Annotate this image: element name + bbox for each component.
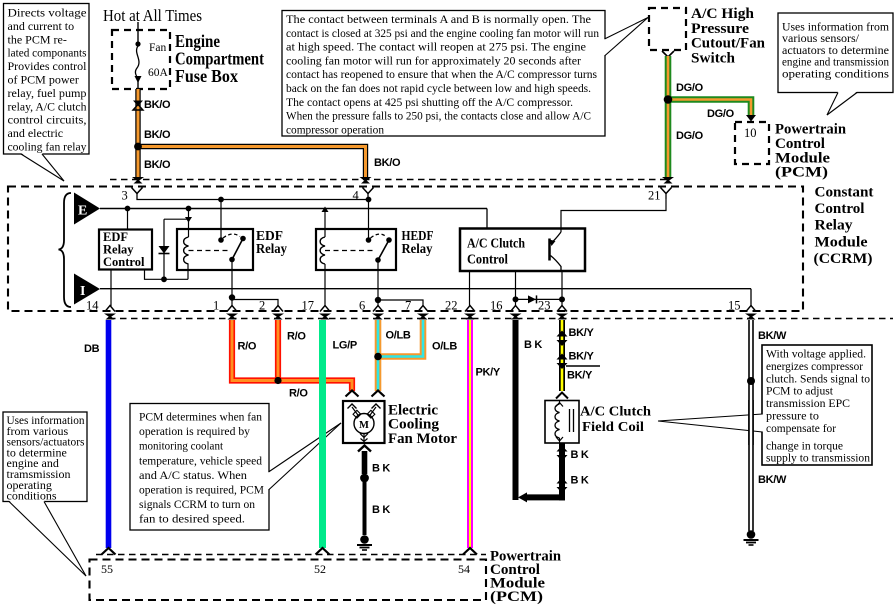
svg-text:R/O: R/O xyxy=(287,331,306,343)
svg-text:B K: B K xyxy=(372,463,390,475)
svg-text:52: 52 xyxy=(314,562,326,576)
svg-text:compressor operation: compressor operation xyxy=(286,122,384,136)
svg-text:Switch: Switch xyxy=(691,50,736,66)
svg-text:monitoring coolant: monitoring coolant xyxy=(139,439,224,453)
svg-text:control circuits,: control circuits, xyxy=(8,113,87,127)
svg-text:When the pressure falls to 250: When the pressure falls to 250 psi, the … xyxy=(286,109,591,123)
svg-text:2: 2 xyxy=(259,299,265,313)
svg-text:signals CCRM to turn on: signals CCRM to turn on xyxy=(139,497,255,511)
svg-text:10: 10 xyxy=(744,126,757,140)
svg-text:(PCM): (PCM) xyxy=(490,589,543,605)
svg-text:A/C Clutch: A/C Clutch xyxy=(580,405,651,420)
svg-text:DG/O: DG/O xyxy=(707,108,735,120)
svg-text:Relay: Relay xyxy=(815,218,854,234)
svg-text:Relay: Relay xyxy=(402,241,433,256)
svg-text:BK/O: BK/O xyxy=(144,129,171,141)
svg-text:Cutout/Fan: Cutout/Fan xyxy=(691,36,766,52)
svg-text:The contact opens at 425 psi s: The contact opens at 425 psi shutting of… xyxy=(286,95,573,109)
svg-text:17: 17 xyxy=(302,299,315,313)
svg-text:23: 23 xyxy=(538,299,551,313)
svg-text:R/O: R/O xyxy=(238,341,257,353)
svg-text:A/C High: A/C High xyxy=(691,6,755,22)
svg-text:The contact between terminals: The contact between terminals A and B is… xyxy=(286,12,591,26)
svg-text:the PCM re-: the PCM re- xyxy=(8,32,67,46)
svg-text:Fan: Fan xyxy=(149,42,167,54)
svg-text:conditions: conditions xyxy=(7,489,57,503)
svg-text:back on the fan does not rapid: back on the fan does not rapid cycle bet… xyxy=(286,81,591,95)
svg-text:E: E xyxy=(78,204,87,219)
svg-text:6: 6 xyxy=(359,299,365,313)
svg-text:O/LB: O/LB xyxy=(432,341,457,353)
svg-text:contact has reopened to ensure: contact has reopened to ensure that when… xyxy=(286,67,597,81)
svg-text:supply to transmission: supply to transmission xyxy=(766,451,870,465)
svg-text:B K: B K xyxy=(571,475,589,487)
svg-text:A/C Clutch: A/C Clutch xyxy=(467,236,525,251)
svg-text:DG/O: DG/O xyxy=(676,82,704,94)
svg-text:BK/O: BK/O xyxy=(144,99,171,111)
svg-text:(CCRM): (CCRM) xyxy=(814,251,873,267)
svg-text:Fan Motor: Fan Motor xyxy=(388,431,458,447)
svg-text:contact is closed at 325 psi a: contact is closed at 325 psi and the eng… xyxy=(286,26,599,40)
svg-text:and A/C status. When: and A/C status. When xyxy=(139,468,247,482)
svg-text:B K: B K xyxy=(372,504,390,516)
svg-text:BK/W: BK/W xyxy=(758,330,787,342)
svg-text:15: 15 xyxy=(728,299,741,313)
svg-text:at high speed. The contact wi: at high speed. The contact will reopen a… xyxy=(286,40,586,54)
svg-text:BK/Y: BK/Y xyxy=(569,327,595,339)
svg-text:fan to desired speed.: fan to desired speed. xyxy=(139,512,245,526)
svg-text:and current to: and current to xyxy=(8,19,75,33)
svg-text:relay, A/C clutch: relay, A/C clutch xyxy=(8,99,87,113)
svg-text:(PCM): (PCM) xyxy=(775,165,828,181)
svg-text:Field Coil: Field Coil xyxy=(582,420,644,435)
svg-text:4: 4 xyxy=(353,189,360,203)
svg-text:cooling fan motor will run for: cooling fan motor will run for approxima… xyxy=(286,53,581,67)
svg-text:relay, fuel pump: relay, fuel pump xyxy=(8,86,87,100)
svg-text:LG/P: LG/P xyxy=(333,340,357,352)
svg-text:DG/O: DG/O xyxy=(676,130,704,142)
svg-text:Constant: Constant xyxy=(815,184,874,200)
svg-text:BK/Y: BK/Y xyxy=(567,370,593,382)
svg-text:operation is required by: operation is required by xyxy=(139,424,250,438)
svg-text:operating conditions: operating conditions xyxy=(782,66,889,80)
svg-text:Provides control: Provides control xyxy=(8,59,88,73)
svg-text:lated componants: lated componants xyxy=(8,46,87,60)
svg-text:BK/O: BK/O xyxy=(374,157,401,169)
svg-text:54: 54 xyxy=(458,562,470,576)
svg-text:DB: DB xyxy=(84,343,100,355)
svg-text:21: 21 xyxy=(648,189,661,203)
svg-text:BK/W: BK/W xyxy=(758,474,787,486)
svg-text:BK/Y: BK/Y xyxy=(569,351,595,363)
svg-text:R/O: R/O xyxy=(289,388,308,400)
svg-text:Relay: Relay xyxy=(256,241,287,256)
svg-text:B K: B K xyxy=(571,449,589,461)
svg-text:7: 7 xyxy=(405,299,411,313)
svg-text:Module: Module xyxy=(815,234,868,250)
svg-text:Control: Control xyxy=(467,252,508,267)
svg-text:1: 1 xyxy=(213,299,219,313)
svg-text:Directs voltage: Directs voltage xyxy=(8,6,87,20)
svg-text:55: 55 xyxy=(101,562,113,576)
svg-text:Hot at All Times: Hot at All Times xyxy=(103,6,202,25)
svg-text:PK/Y: PK/Y xyxy=(476,367,501,379)
svg-text:PCM determines when fan: PCM determines when fan xyxy=(139,410,262,424)
svg-text:B K: B K xyxy=(524,339,542,351)
svg-text:Control: Control xyxy=(815,201,865,217)
svg-text:14: 14 xyxy=(86,299,99,313)
svg-text:3: 3 xyxy=(122,189,128,203)
svg-text:and electric: and electric xyxy=(8,126,64,140)
svg-text:operation is required, PCM: operation is required, PCM xyxy=(139,483,264,497)
svg-text:16: 16 xyxy=(490,299,503,313)
svg-text:Control: Control xyxy=(103,255,145,269)
svg-text:I: I xyxy=(80,284,85,299)
svg-text:compensate for: compensate for xyxy=(766,421,836,435)
svg-text:22: 22 xyxy=(445,299,458,313)
svg-text:cooling fan relay: cooling fan relay xyxy=(8,140,87,154)
svg-text:60A: 60A xyxy=(148,67,169,79)
svg-text:BK/O: BK/O xyxy=(144,159,171,171)
svg-text:O/LB: O/LB xyxy=(386,330,411,342)
svg-text:M: M xyxy=(359,420,369,431)
svg-text:Pressure: Pressure xyxy=(691,21,749,37)
svg-text:temperature, vehicle speed: temperature, vehicle speed xyxy=(139,453,262,467)
svg-text:of PCM power: of PCM power xyxy=(8,73,79,87)
svg-text:Fuse Box: Fuse Box xyxy=(175,66,238,86)
